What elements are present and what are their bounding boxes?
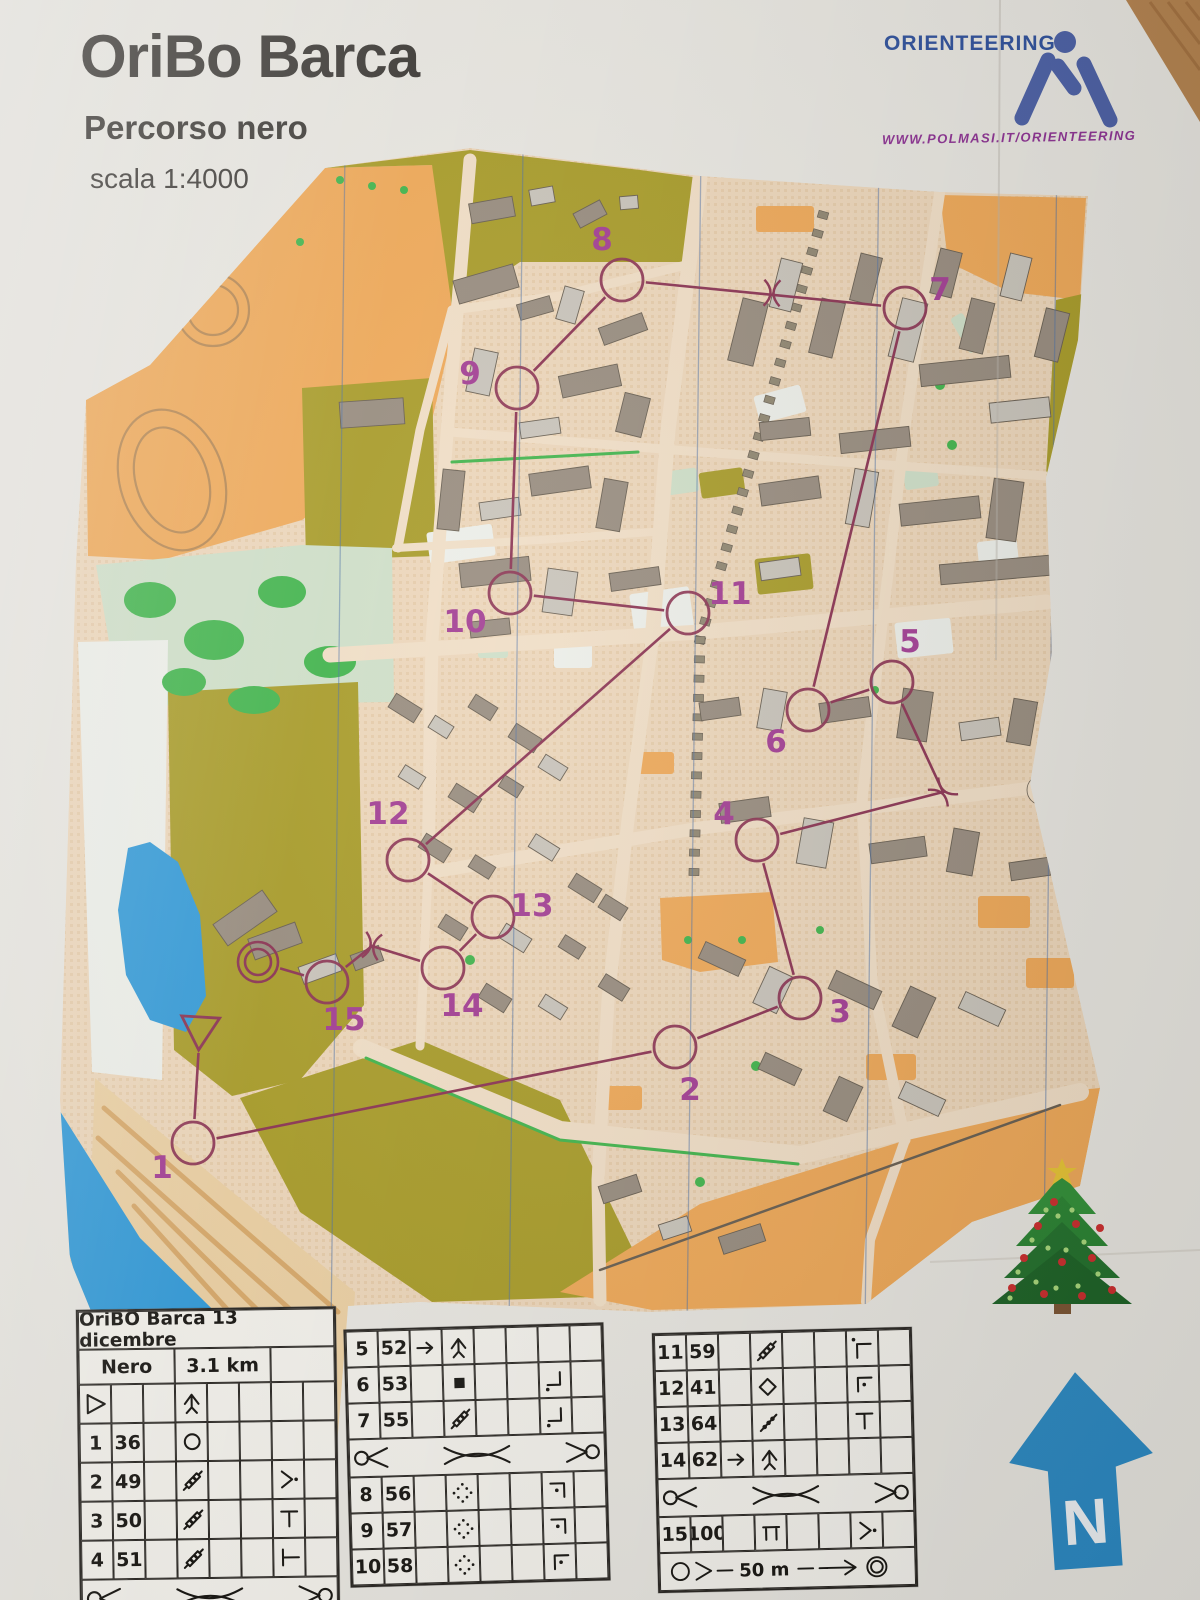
- desc-cell-col-E: [783, 1367, 816, 1404]
- desc-cell-col-A: 3: [81, 1501, 114, 1540]
- desc-cell-col-D: [442, 1364, 475, 1401]
- desc-cell-col-F: [816, 1402, 849, 1439]
- desc-cell-col-H: [574, 1506, 607, 1543]
- desc-cell-col-A: 4: [81, 1540, 114, 1579]
- desc-cell-col-G: [850, 1512, 883, 1549]
- desc-cell-col-F: [511, 1508, 544, 1545]
- desc-cell-col-F: [814, 1330, 847, 1367]
- control-descriptions-table-3: 115912411364146215100 50 m: [652, 1327, 918, 1593]
- desc-cell-col-A: 7: [348, 1403, 381, 1440]
- desc-cell-col-B: 36: [111, 1423, 144, 1462]
- desc-cell-col-E: [478, 1473, 511, 1510]
- desc-cell-col-B: 58: [384, 1548, 417, 1585]
- course-info-cell: 3.1 km: [174, 1347, 270, 1383]
- desc-cell-col-E: [207, 1383, 240, 1422]
- desc-cell-col-B: 56: [382, 1476, 415, 1513]
- desc-cell-col-D: [175, 1383, 208, 1422]
- desc-cell-col-A: 8: [350, 1477, 383, 1514]
- desc-cell-col-D: [177, 1500, 210, 1539]
- title-block: OriBo Barca Percorso nero scala 1:4000: [80, 22, 419, 195]
- crossing-point-row: [657, 1473, 914, 1517]
- desc-cell-col-D: [176, 1461, 209, 1500]
- desc-cell-col-H: [305, 1537, 338, 1576]
- desc-cell-col-D: [448, 1546, 481, 1583]
- event-title-cell: OriBO Barca 13 dicembre: [78, 1308, 335, 1350]
- desc-cell-col-E: [786, 1513, 819, 1550]
- desc-cell-col-B: 62: [689, 1442, 722, 1479]
- desc-cell-col-C: [719, 1369, 752, 1406]
- desc-cell-col-B: 49: [112, 1462, 145, 1501]
- svg-text:6: 6: [765, 724, 787, 760]
- course-info-cell: Nero: [78, 1348, 174, 1384]
- desc-cell-col-A: [79, 1384, 112, 1423]
- desc-cell-col-B: 53: [378, 1366, 411, 1403]
- desc-cell-col-F: [239, 1421, 272, 1460]
- desc-cell-col-D: [754, 1514, 787, 1551]
- svg-text:15: 15: [322, 1002, 365, 1038]
- desc-cell-col-C: [145, 1500, 178, 1539]
- club-logo-text: ORIENTEERING: [884, 32, 1056, 56]
- course-subtitle: Percorso nero: [84, 109, 419, 147]
- desc-cell-col-A: 11: [654, 1334, 687, 1371]
- photographed-orienteering-map-sheet: 123456789101112131415: [0, 0, 1200, 1600]
- desc-cell-col-B: 59: [686, 1334, 719, 1371]
- desc-cell-col-C: [409, 1329, 442, 1366]
- desc-cell-col-A: 13: [656, 1406, 689, 1443]
- desc-cell-col-H: [305, 1498, 338, 1537]
- desc-cell-col-G: [537, 1325, 570, 1362]
- desc-cell-col-F: [815, 1366, 848, 1403]
- desc-cell-col-D: [441, 1328, 474, 1365]
- desc-cell-col-C: [721, 1441, 754, 1478]
- desc-cell-col-F: [510, 1472, 543, 1509]
- desc-cell-col-A: 14: [657, 1442, 690, 1479]
- desc-cell-col-E: [474, 1363, 507, 1400]
- desc-cell-col-F: [241, 1499, 274, 1538]
- desc-cell-col-H: [571, 1396, 604, 1433]
- desc-cell-col-F: [512, 1544, 545, 1581]
- desc-cell-col-G: [848, 1438, 881, 1475]
- desc-cell-col-H: [303, 1381, 336, 1420]
- desc-cell-col-F: [240, 1460, 273, 1499]
- desc-cell-col-H: [882, 1511, 915, 1548]
- orienteering-map-artwork: [48, 148, 1118, 1490]
- desc-cell-col-A: 15: [658, 1516, 691, 1553]
- desc-cell-col-H: [576, 1542, 609, 1579]
- desc-cell-col-A: 5: [346, 1331, 379, 1368]
- desc-cell-col-B: 100: [690, 1516, 723, 1553]
- desc-cell-col-E: [208, 1461, 241, 1500]
- control-descriptions-table-2: 5526537558569571058: [343, 1322, 610, 1587]
- desc-cell-col-A: 10: [352, 1549, 385, 1586]
- course-info-cell: [270, 1346, 334, 1382]
- svg-text:50 m: 50 m: [739, 1559, 790, 1581]
- svg-text:14: 14: [440, 988, 483, 1024]
- desc-cell-col-C: [411, 1401, 444, 1438]
- desc-cell-col-E: [475, 1399, 508, 1436]
- svg-text:3: 3: [829, 994, 851, 1030]
- desc-cell-col-D: [175, 1422, 208, 1461]
- desc-cell-col-H: [878, 1329, 911, 1366]
- svg-text:7: 7: [929, 272, 951, 308]
- desc-cell-col-E: [479, 1509, 512, 1546]
- desc-cell-col-G: [271, 1421, 304, 1460]
- desc-cell-col-E: [207, 1422, 240, 1461]
- desc-cell-col-C: [143, 1383, 176, 1422]
- desc-cell-col-F: [818, 1512, 851, 1549]
- desc-cell-col-C: [143, 1422, 176, 1461]
- desc-cell-col-A: 12: [655, 1370, 688, 1407]
- desc-cell-col-E: [782, 1331, 815, 1368]
- desc-cell-col-G: [538, 1361, 571, 1398]
- desc-cell-col-E: [473, 1327, 506, 1364]
- svg-text:9: 9: [459, 356, 481, 392]
- desc-cell-col-H: [880, 1437, 913, 1474]
- desc-cell-col-H: [570, 1360, 603, 1397]
- desc-cell-col-G: [544, 1543, 577, 1580]
- north-label: N: [1060, 1484, 1111, 1559]
- svg-text:13: 13: [510, 888, 553, 924]
- desc-cell-col-D: [751, 1368, 784, 1405]
- desc-cell-col-C: [720, 1405, 753, 1442]
- wood-table-corner: [1126, 0, 1200, 122]
- north-arrow: N: [1003, 1367, 1160, 1573]
- desc-cell-col-G: [847, 1366, 880, 1403]
- svg-text:1: 1: [151, 1150, 173, 1186]
- control-descriptions-table-1: OriBO Barca 13 dicembreNero3.1 km1362493…: [76, 1306, 340, 1600]
- desc-cell-col-D: [447, 1510, 480, 1547]
- scale-label: scala 1:4000: [90, 163, 419, 195]
- desc-cell-col-G: [273, 1538, 306, 1577]
- desc-cell-col-B: [111, 1384, 144, 1423]
- desc-cell-col-H: [569, 1324, 602, 1361]
- desc-cell-col-G: [273, 1499, 306, 1538]
- desc-cell-col-F: [817, 1438, 850, 1475]
- desc-cell-col-G: [848, 1402, 881, 1439]
- desc-cell-col-G: [272, 1460, 305, 1499]
- svg-text:8: 8: [591, 222, 613, 258]
- desc-cell-col-D: [446, 1474, 479, 1511]
- desc-cell-col-C: [414, 1475, 447, 1512]
- desc-cell-col-C: [416, 1547, 449, 1584]
- desc-cell-col-C: [415, 1511, 448, 1548]
- desc-cell-col-E: [784, 1403, 817, 1440]
- desc-cell-col-B: 64: [688, 1406, 721, 1443]
- map-title: OriBo Barca: [80, 22, 419, 91]
- svg-text:12: 12: [366, 796, 409, 832]
- desc-cell-col-D: [752, 1404, 785, 1441]
- desc-cell-col-H: [879, 1365, 912, 1402]
- desc-cell-col-H: [303, 1420, 336, 1459]
- finish-route-row: 50 m: [659, 1547, 916, 1591]
- desc-cell-col-A: 1: [79, 1423, 112, 1462]
- desc-cell-col-D: [443, 1400, 476, 1437]
- svg-text:5: 5: [899, 624, 921, 660]
- desc-cell-col-B: 52: [377, 1330, 410, 1367]
- desc-cell-col-B: 50: [113, 1501, 146, 1540]
- desc-cell-col-E: [209, 1539, 242, 1578]
- desc-cell-col-G: [542, 1471, 575, 1508]
- desc-cell-col-B: 51: [113, 1540, 146, 1579]
- desc-cell-col-C: [145, 1539, 178, 1578]
- desc-cell-col-B: 57: [383, 1512, 416, 1549]
- desc-cell-col-A: 6: [347, 1367, 380, 1404]
- desc-cell-col-F: [507, 1398, 540, 1435]
- desc-cell-col-F: [506, 1362, 539, 1399]
- svg-text:4: 4: [713, 796, 735, 832]
- desc-cell-col-H: [880, 1401, 913, 1438]
- desc-cell-col-A: 2: [80, 1462, 113, 1501]
- desc-cell-col-C: [410, 1365, 443, 1402]
- desc-cell-col-G: [846, 1330, 879, 1367]
- desc-cell-col-F: [505, 1326, 538, 1363]
- desc-cell-col-G: [543, 1507, 576, 1544]
- desc-cell-col-F: [239, 1382, 272, 1421]
- desc-cell-col-A: 9: [351, 1513, 384, 1550]
- desc-cell-col-G: [271, 1382, 304, 1421]
- desc-cell-col-E: [785, 1439, 818, 1476]
- desc-cell-col-C: [144, 1461, 177, 1500]
- desc-cell-col-B: 41: [687, 1370, 720, 1407]
- desc-cell-col-F: [241, 1538, 274, 1577]
- desc-cell-col-E: [480, 1545, 513, 1582]
- desc-cell-col-H: [304, 1459, 337, 1498]
- svg-text:10: 10: [443, 604, 486, 640]
- crossing-point-row: [82, 1576, 339, 1600]
- desc-cell-col-G: [539, 1397, 572, 1434]
- desc-cell-col-D: [753, 1440, 786, 1477]
- desc-cell-col-D: [177, 1539, 210, 1578]
- desc-cell-col-C: [718, 1333, 751, 1370]
- svg-text:2: 2: [679, 1072, 701, 1108]
- desc-cell-col-B: 55: [380, 1402, 413, 1439]
- desc-cell-col-H: [573, 1470, 606, 1507]
- desc-cell-col-D: [750, 1332, 783, 1369]
- desc-cell-col-C: [722, 1515, 755, 1552]
- desc-cell-col-E: [209, 1500, 242, 1539]
- svg-text:11: 11: [708, 576, 751, 612]
